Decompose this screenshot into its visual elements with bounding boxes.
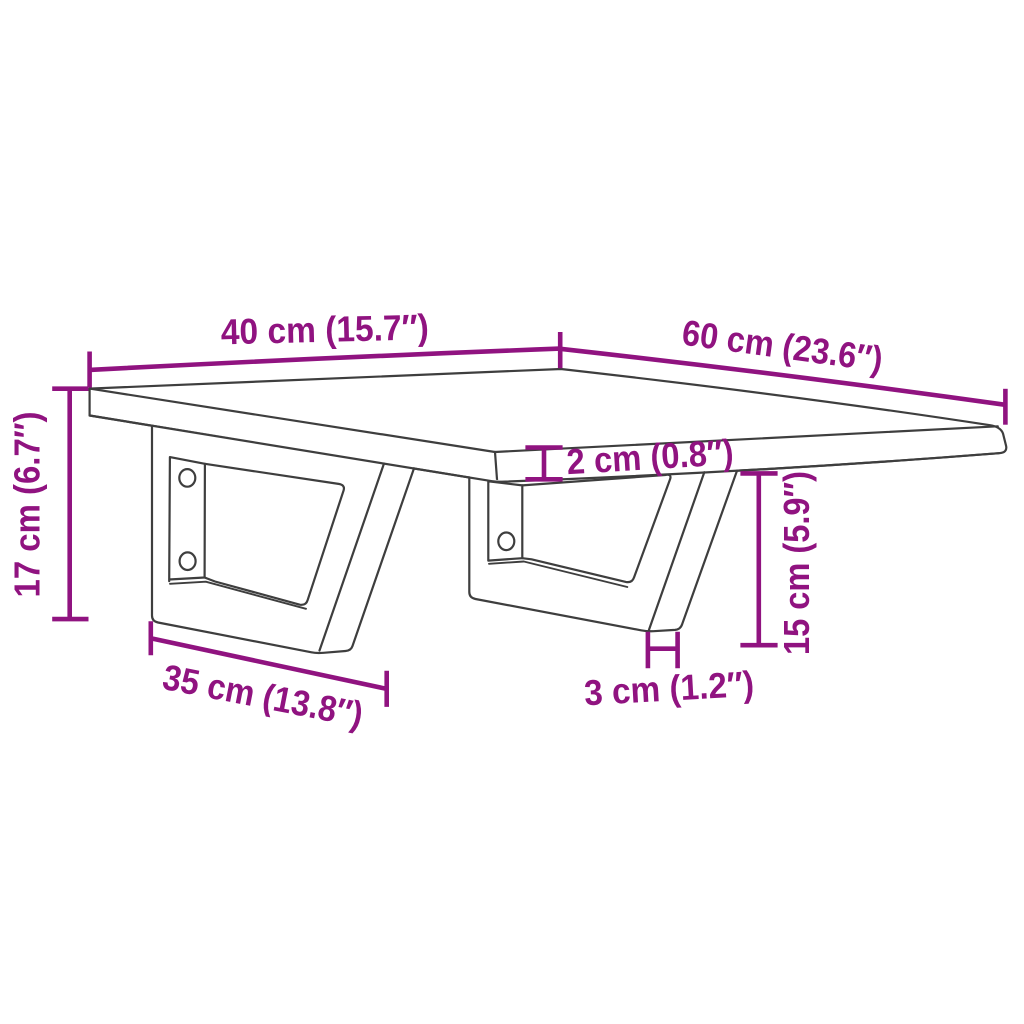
svg-text:3 cm (1.2″): 3 cm (1.2″): [583, 663, 755, 713]
svg-text:60 cm (23.6″): 60 cm (23.6″): [680, 312, 886, 380]
svg-text:17 cm (6.7″): 17 cm (6.7″): [7, 412, 48, 598]
svg-text:15 cm (5.9″): 15 cm (5.9″): [776, 471, 817, 655]
svg-text:35 cm (13.8″): 35 cm (13.8″): [159, 656, 366, 735]
svg-text:40 cm (15.7″): 40 cm (15.7″): [220, 306, 429, 352]
